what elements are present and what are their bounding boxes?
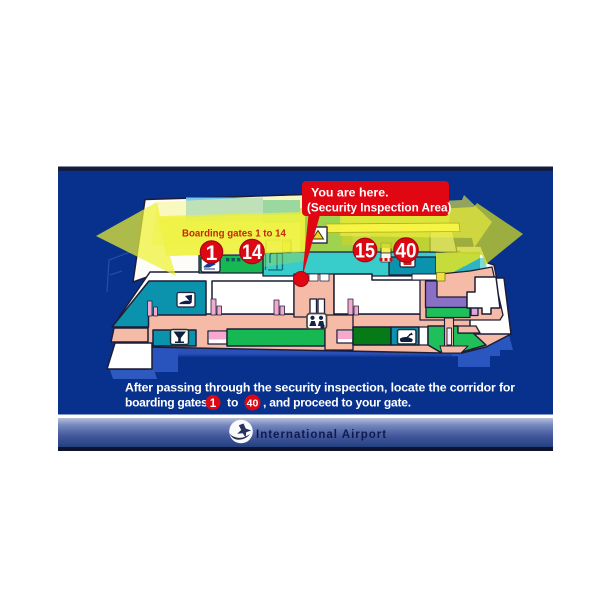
svg-text:After passing through the secu: After passing through the security inspe…	[125, 381, 515, 395]
svg-text:14: 14	[242, 241, 262, 264]
svg-text:1: 1	[210, 398, 217, 410]
svg-text:to: to	[227, 396, 238, 410]
svg-text:Boarding gates 1 to 14: Boarding gates 1 to 14	[182, 229, 287, 240]
svg-text:(Security Inspection Area): (Security Inspection Area)	[307, 202, 452, 215]
svg-text:40: 40	[396, 240, 417, 263]
svg-text:You are here.: You are here.	[311, 186, 389, 200]
svg-text:boarding gates: boarding gates	[125, 396, 208, 410]
svg-text:40: 40	[247, 398, 259, 410]
svg-text:15: 15	[355, 240, 375, 263]
svg-text:, and proceed to your gate.: , and proceed to your gate.	[263, 396, 411, 410]
svg-text:1: 1	[206, 242, 218, 265]
svg-text:International Airport: International Airport	[256, 429, 387, 441]
